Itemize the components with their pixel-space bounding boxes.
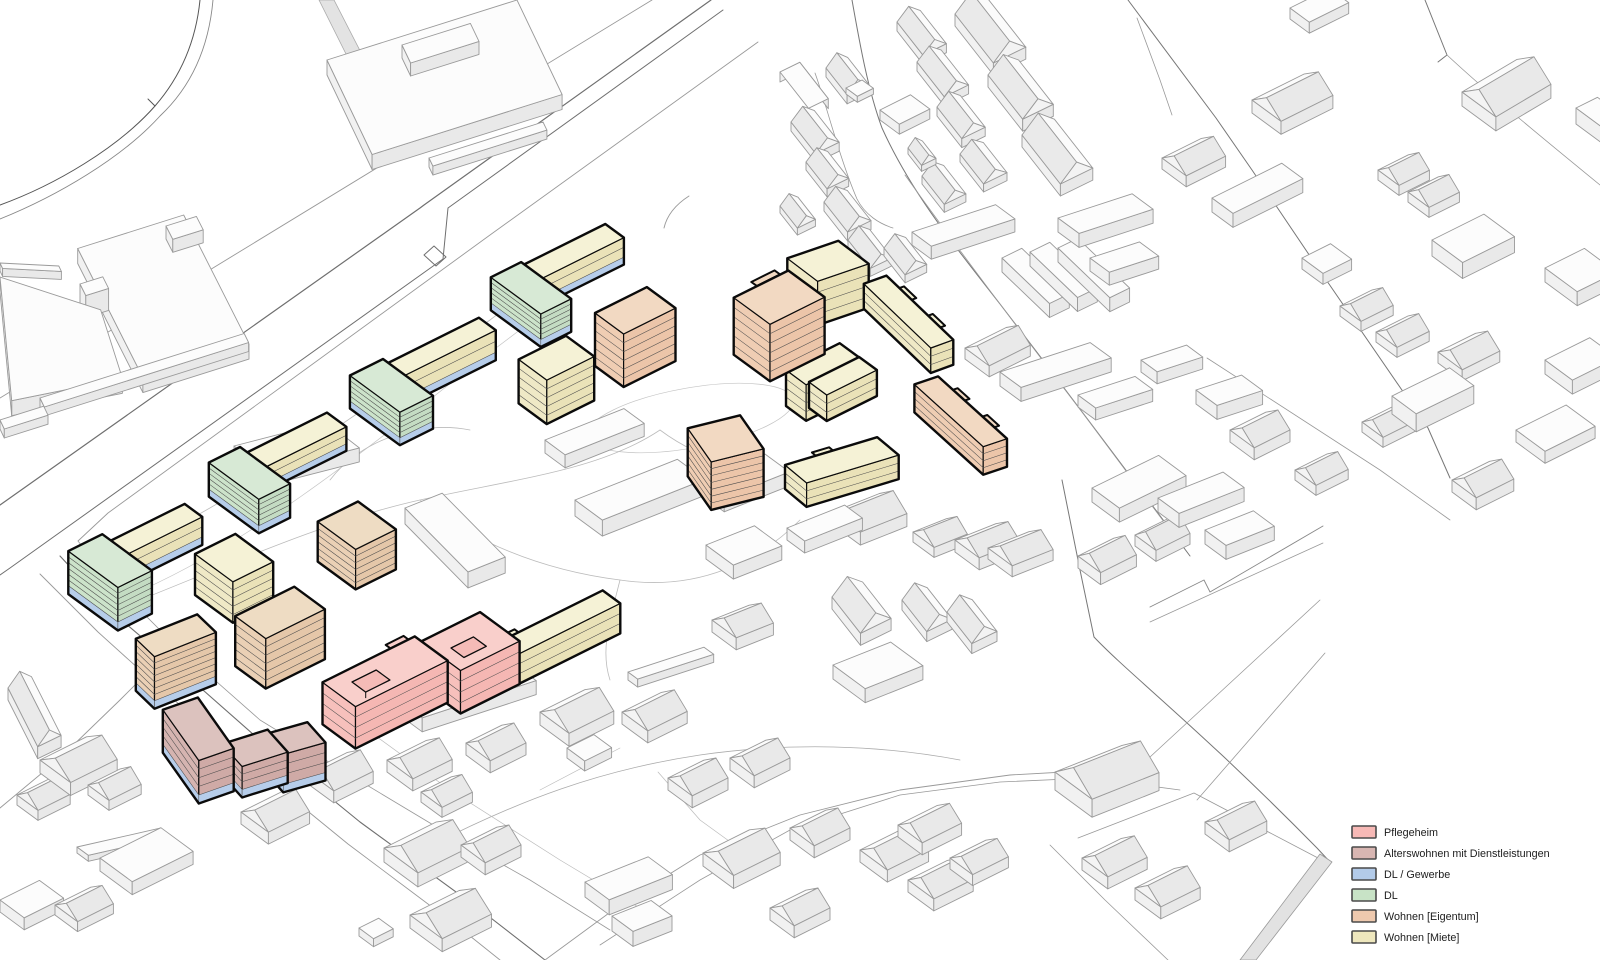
svg-text:Wohnen [Miete]: Wohnen [Miete] bbox=[1384, 932, 1459, 944]
svg-text:DL: DL bbox=[1384, 890, 1398, 902]
svg-text:Wohnen [Eigentum]: Wohnen [Eigentum] bbox=[1384, 911, 1479, 923]
svg-text:Alterswohnen mit Dienstleistun: Alterswohnen mit Dienstleistungen bbox=[1384, 848, 1550, 860]
svg-text:Pflegeheim: Pflegeheim bbox=[1384, 827, 1438, 839]
svg-text:DL / Gewerbe: DL / Gewerbe bbox=[1384, 869, 1450, 881]
